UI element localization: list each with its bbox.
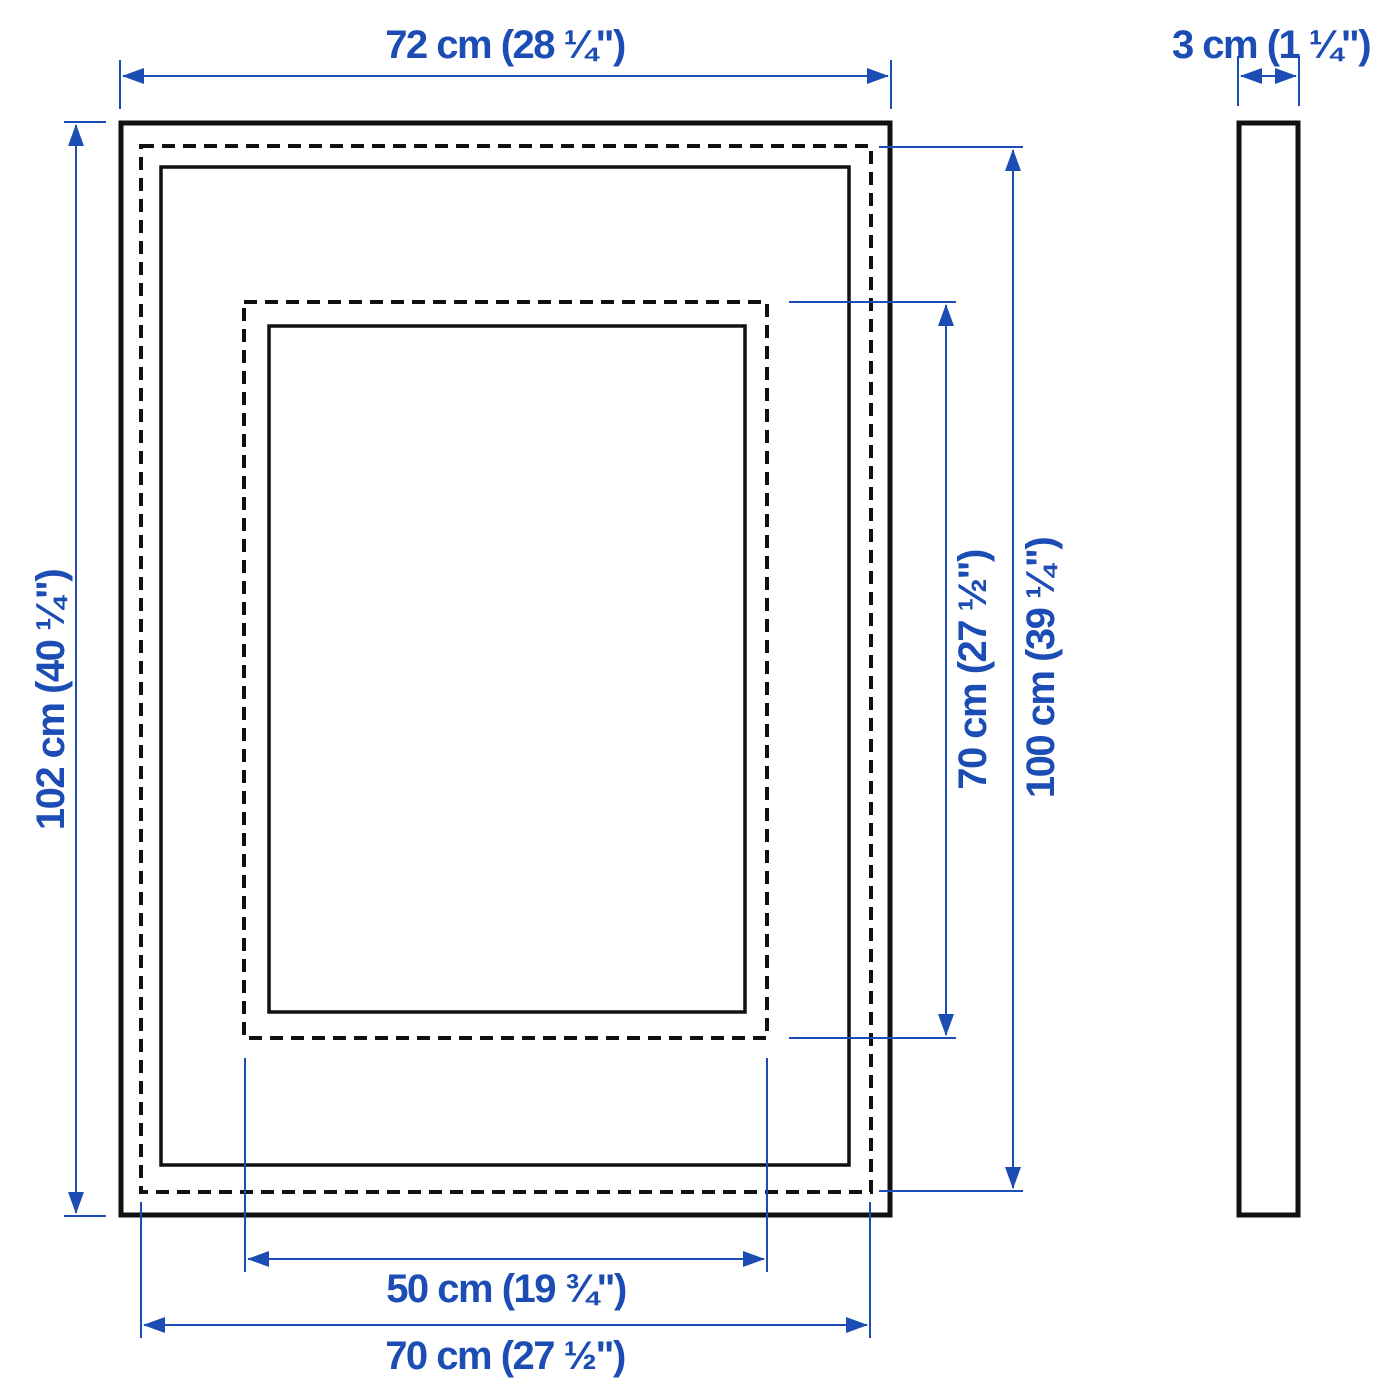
dimension-picture-with-mat-width: 50 cm (19 ¾") (245, 1058, 767, 1311)
frame-depth-label: 3 cm (1 ¼") (1172, 23, 1370, 67)
dimension-frame-depth: 3 cm (1 ¼") (1172, 23, 1370, 106)
picture-without-mat-height-label: 100 cm (39 ¼") (1019, 538, 1063, 799)
frame-height-label: 102 cm (40 ¼") (29, 570, 73, 831)
front-view (121, 123, 890, 1215)
side-view (1239, 123, 1298, 1215)
picture-without-mat-width-label: 70 cm (27 ½") (385, 1334, 625, 1378)
picture-with-mat-outline (244, 302, 767, 1038)
picture-with-mat-height-label: 70 cm (27 ½") (951, 550, 995, 790)
dimension-diagram-svg: 72 cm (28 ¼") 3 cm (1 ¼") 102 cm (40 ¼")… (0, 0, 1400, 1400)
frame-depth-outline (1239, 123, 1298, 1215)
dimension-frame-width: 72 cm (28 ¼") (120, 23, 891, 109)
product-dimension-diagram: 72 cm (28 ¼") 3 cm (1 ¼") 102 cm (40 ¼")… (0, 0, 1400, 1400)
picture-with-mat-width-label: 50 cm (19 ¾") (386, 1267, 626, 1311)
dimension-frame-height: 102 cm (40 ¼") (29, 122, 106, 1216)
frame-width-label: 72 cm (28 ¼") (385, 23, 625, 67)
frame-outer-outline (121, 123, 890, 1215)
mat-opening-outline (269, 326, 745, 1012)
